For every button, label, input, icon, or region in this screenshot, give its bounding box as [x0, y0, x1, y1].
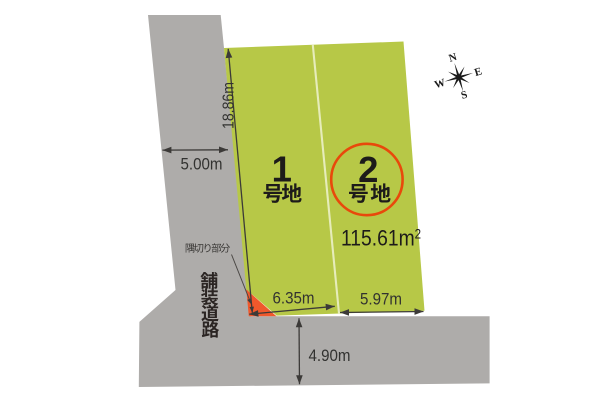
svg-text:5.00m: 5.00m — [181, 155, 223, 173]
svg-text:115.61m2: 115.61m2 — [341, 226, 421, 251]
svg-text:6.35m: 6.35m — [273, 289, 315, 307]
svg-text:4.90m: 4.90m — [309, 346, 351, 365]
svg-text:18.86m: 18.86m — [221, 82, 238, 129]
svg-text:1: 1 — [272, 148, 292, 189]
svg-text:5.97m: 5.97m — [360, 291, 402, 309]
